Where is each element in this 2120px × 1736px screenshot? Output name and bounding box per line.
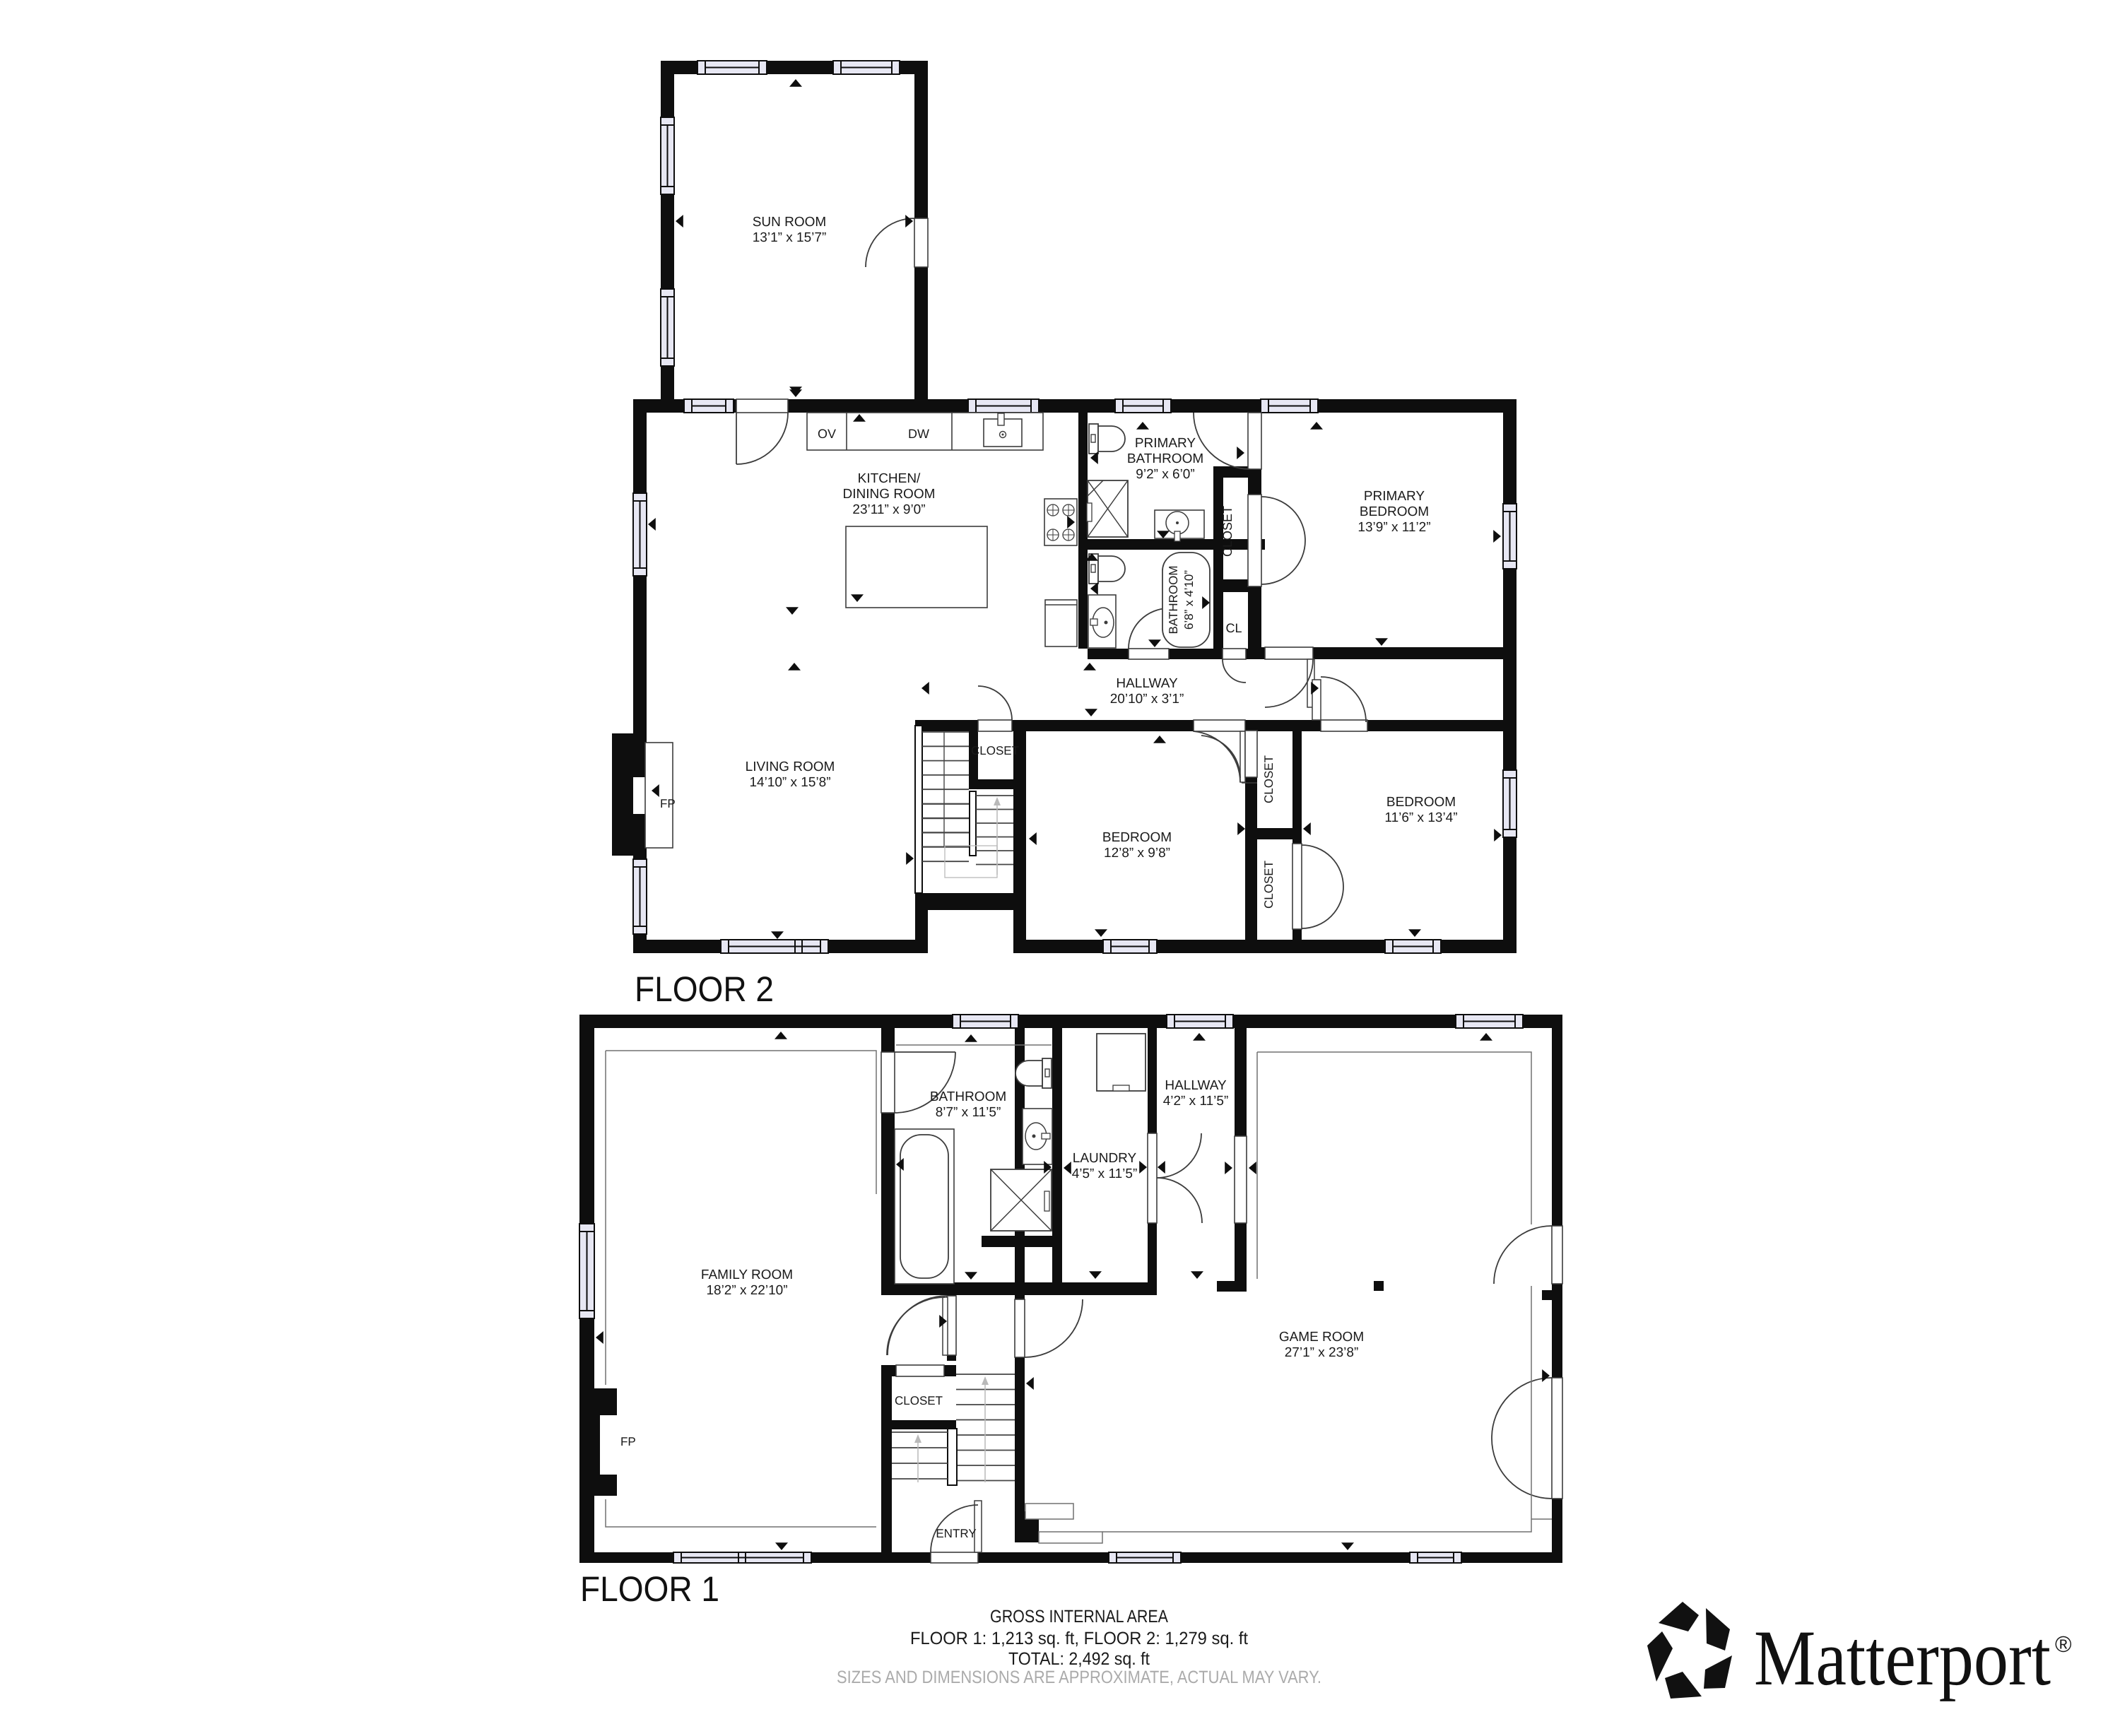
svg-text:GAME ROOM: GAME ROOM <box>1279 1330 1364 1345</box>
svg-text:18’2” x 22’10”: 18’2” x 22’10” <box>706 1283 787 1298</box>
svg-text:BEDROOM: BEDROOM <box>1102 830 1172 845</box>
svg-text:FAMILY ROOM: FAMILY ROOM <box>701 1268 793 1282</box>
svg-text:12’8” x 9’8”: 12’8” x 9’8” <box>1104 846 1170 861</box>
svg-text:CLOSET: CLOSET <box>895 1394 943 1407</box>
svg-text:BEDROOM: BEDROOM <box>1386 795 1456 810</box>
svg-text:14’10” x 15’8”: 14’10” x 15’8” <box>749 775 830 790</box>
svg-text:SIZES AND DIMENSIONS ARE APPRO: SIZES AND DIMENSIONS ARE APPROXIMATE, AC… <box>837 1667 1321 1687</box>
svg-text:DW: DW <box>908 427 929 441</box>
svg-text:DINING ROOM: DINING ROOM <box>843 487 936 502</box>
svg-text:13’9” x 11’2”: 13’9” x 11’2” <box>1358 520 1430 535</box>
svg-text:8’7” x 11’5”: 8’7” x 11’5” <box>936 1105 1001 1120</box>
svg-text:FP: FP <box>660 797 676 810</box>
svg-text:Matterport: Matterport <box>1754 1614 2051 1702</box>
svg-text:20’10” x 3’1”: 20’10” x 3’1” <box>1110 692 1184 707</box>
svg-text:CLOSET: CLOSET <box>971 744 1019 757</box>
svg-text:9’2” x 6’0”: 9’2” x 6’0” <box>1136 467 1194 482</box>
svg-text:PRIMARY: PRIMARY <box>1364 489 1425 504</box>
svg-text:27’1” x 23’8”: 27’1” x 23’8” <box>1285 1345 1359 1360</box>
svg-text:BEDROOM: BEDROOM <box>1360 504 1429 519</box>
svg-text:CLOSET: CLOSET <box>1220 506 1235 557</box>
svg-text:FLOOR 1: 1,213 sq. ft, FLOOR 2: FLOOR 1: 1,213 sq. ft, FLOOR 2: 1,279 sq… <box>910 1629 1248 1648</box>
svg-text:FLOOR 2: FLOOR 2 <box>635 969 774 1009</box>
svg-text:PRIMARY: PRIMARY <box>1135 436 1196 451</box>
svg-text:CLOSET: CLOSET <box>1262 861 1276 909</box>
svg-text:13’1” x 15’7”: 13’1” x 15’7” <box>753 230 827 245</box>
svg-text:FP: FP <box>620 1435 636 1448</box>
svg-text:SUN ROOM: SUN ROOM <box>753 215 827 230</box>
svg-text:BATHROOM: BATHROOM <box>930 1090 1006 1104</box>
svg-text:ENTRY: ENTRY <box>936 1527 976 1540</box>
svg-text:6’8” x 4’10”: 6’8” x 4’10” <box>1182 570 1196 630</box>
svg-text:®: ® <box>2055 1631 2072 1657</box>
svg-text:11’6” x 13’4”: 11’6” x 13’4” <box>1384 810 1457 825</box>
svg-text:GROSS INTERNAL AREA: GROSS INTERNAL AREA <box>990 1607 1168 1626</box>
svg-text:KITCHEN/: KITCHEN/ <box>858 471 921 486</box>
svg-text:LAUNDRY: LAUNDRY <box>1073 1151 1137 1166</box>
svg-text:CL: CL <box>1225 621 1242 635</box>
svg-text:HALLWAY: HALLWAY <box>1165 1078 1227 1093</box>
svg-text:4’5” x 11’5”: 4’5” x 11’5” <box>1072 1167 1138 1181</box>
svg-text:HALLWAY: HALLWAY <box>1116 676 1178 691</box>
svg-text:TOTAL: 2,492 sq. ft: TOTAL: 2,492 sq. ft <box>1008 1649 1150 1669</box>
svg-text:BATHROOM: BATHROOM <box>1167 566 1180 634</box>
svg-text:CLOSET: CLOSET <box>1262 755 1276 803</box>
svg-text:BATHROOM: BATHROOM <box>1127 451 1203 466</box>
svg-text:OV: OV <box>818 427 836 441</box>
svg-text:FLOOR 1: FLOOR 1 <box>580 1569 719 1609</box>
svg-text:4’2” x 11’5”: 4’2” x 11’5” <box>1163 1094 1229 1109</box>
svg-text:23’11” x 9’0”: 23’11” x 9’0” <box>852 502 925 517</box>
svg-text:LIVING ROOM: LIVING ROOM <box>746 760 835 774</box>
